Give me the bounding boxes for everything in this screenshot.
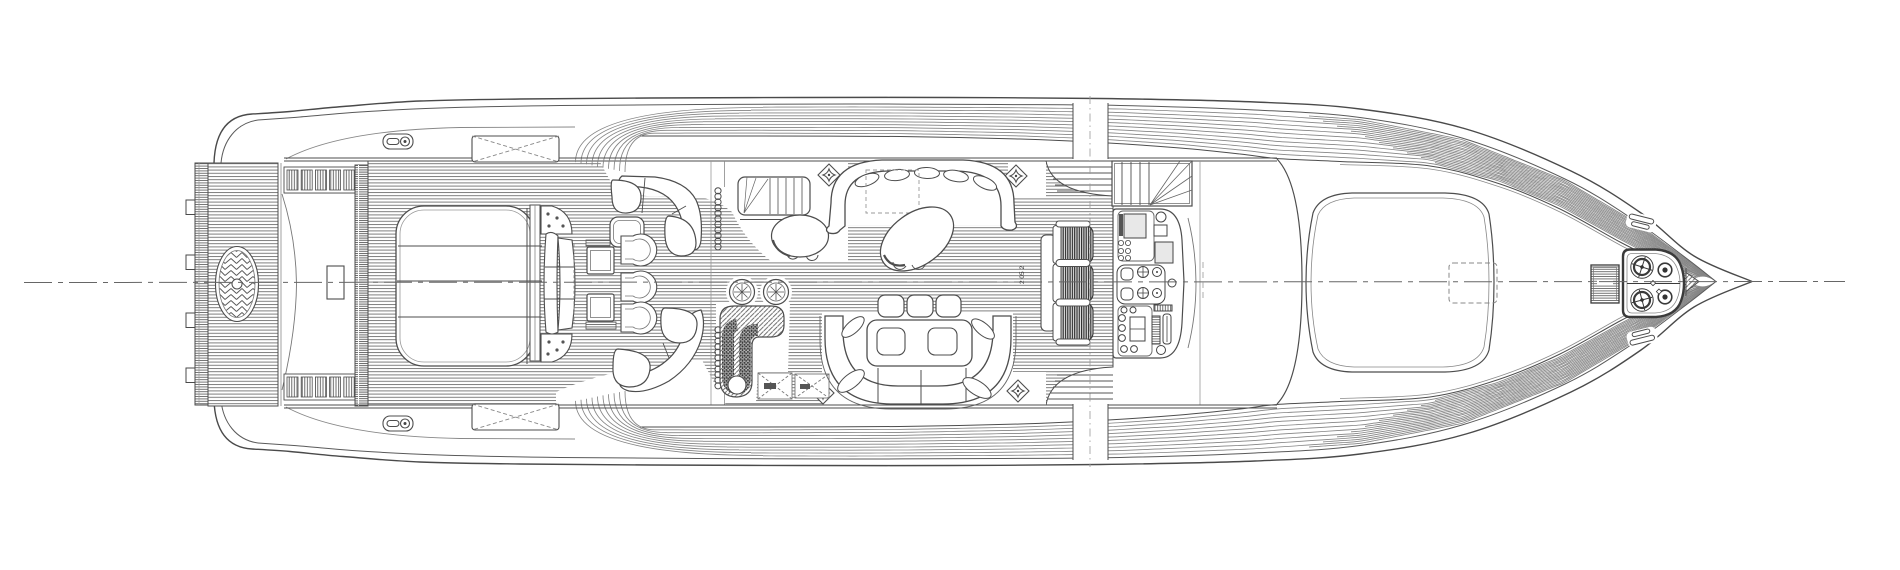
svg-text:2 05 2: 2 05 2 (1019, 266, 1026, 284)
